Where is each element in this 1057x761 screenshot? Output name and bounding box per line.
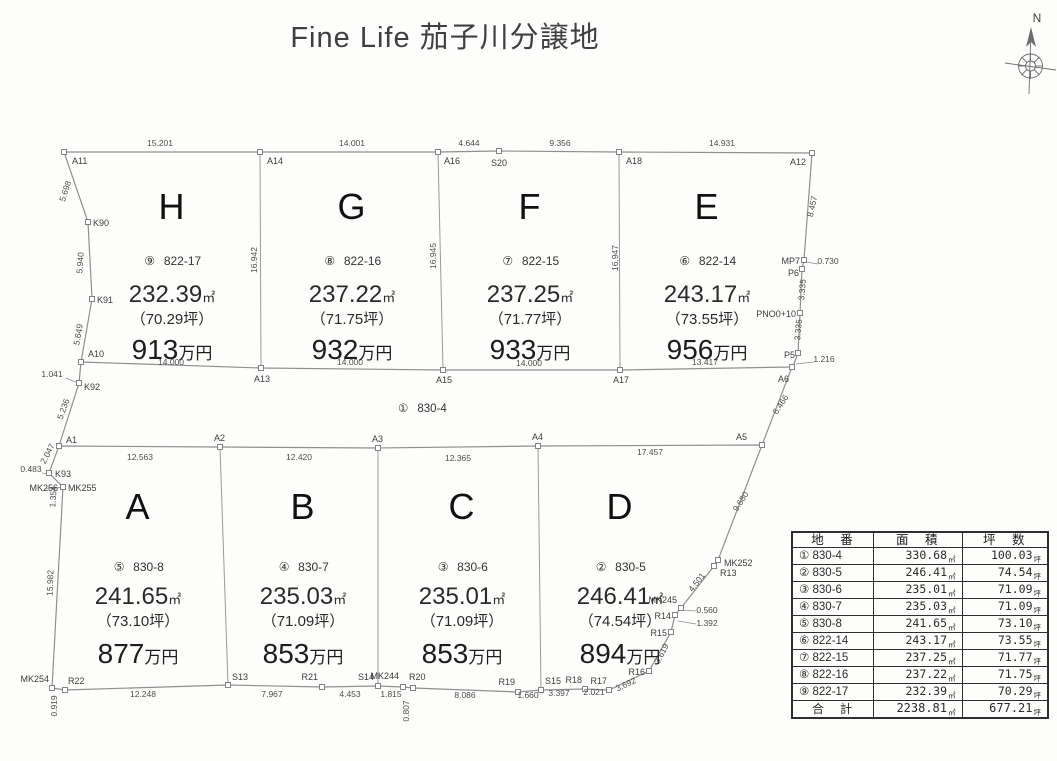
dimension-label: 3.692: [614, 675, 638, 693]
lot-tsubo: （71.77坪）: [450, 311, 610, 329]
survey-point-marker: [539, 688, 544, 693]
lot-area-unit: ㎡: [560, 290, 573, 305]
survey-point-label: A11: [72, 156, 87, 166]
lot-area: 246.41㎡: [540, 584, 700, 613]
dimension-label: 0.730: [817, 256, 839, 266]
survey-point-marker: [441, 368, 446, 373]
road-parcel-label: ①830-4: [398, 401, 447, 415]
lot-letter: B: [223, 486, 383, 528]
lot-summary-table: 地 番 面 積 坪 数 ① 830-4330.68㎡100.03坪② 830-5…: [791, 531, 1049, 719]
survey-point-marker: [810, 151, 815, 156]
lot-parcel: ⑧822-16: [272, 254, 432, 268]
lot-circle-number: ④: [277, 560, 291, 574]
survey-point-marker: [760, 443, 765, 448]
compass-spokes: [1018, 53, 1043, 79]
cell-total-area: 2238.81㎡: [873, 701, 962, 719]
lot-price-unit: 万円: [309, 648, 343, 667]
dimension-label: 12.248: [130, 689, 156, 699]
subdivision-plan-page: Fine Life 茄子川分譲地 N: [0, 0, 1057, 761]
survey-point-label: A5: [736, 432, 747, 442]
lot-price: 933万円: [450, 335, 610, 369]
lot-parcel: ⑨822-17: [92, 254, 252, 268]
lot-letter: D: [540, 486, 700, 528]
lot-area-unit: ㎡: [650, 592, 663, 607]
cell-tsubo: 70.29坪: [962, 684, 1048, 701]
lot-price: 956万円: [627, 335, 787, 369]
survey-point-label: A6: [778, 374, 789, 384]
lot-price-value: 853: [263, 638, 310, 669]
survey-point-marker: [802, 258, 807, 263]
dimension-label: 1.041: [41, 369, 63, 379]
survey-point-label: K93: [55, 469, 71, 479]
cell-area: 235.01㎡: [873, 582, 962, 599]
survey-point-label: A16: [444, 156, 460, 166]
dimension-label: 7.967: [261, 689, 283, 699]
survey-point-label: R21: [301, 672, 318, 682]
lot-price-unit: 万円: [144, 648, 178, 667]
table-row: ⑨ 822-17232.39㎡70.29坪: [792, 684, 1048, 701]
lot-price: 877万円: [58, 639, 218, 673]
lot-price: 853万円: [223, 639, 383, 673]
lot-price-value: 932: [312, 334, 359, 365]
survey-point-label: S15: [545, 676, 561, 686]
survey-point-marker: [47, 471, 52, 476]
lot-parcel: ③830-6: [382, 560, 542, 574]
lot-area-value: 235.01: [419, 583, 492, 610]
compass-north-label: N: [1033, 11, 1042, 25]
survey-point-marker: [436, 150, 441, 155]
survey-point-label: R20: [409, 672, 426, 682]
survey-point-label: R17: [590, 676, 607, 686]
cell-tsubo: 71.09坪: [962, 582, 1048, 599]
lot-tsubo: （73.55坪）: [627, 311, 787, 329]
lot-parcel-number: 830-7: [298, 560, 329, 574]
dimension-label: 2.021: [583, 687, 605, 697]
lot-area-value: 237.25: [487, 281, 560, 308]
dimension-label: 17.457: [637, 447, 663, 457]
lot-price-value: 933: [490, 334, 537, 365]
survey-point-marker: [62, 150, 67, 155]
survey-point-label: MK252: [724, 558, 753, 568]
dimension-label: 1.216: [813, 354, 835, 364]
dimension-label: 5.698: [57, 179, 73, 203]
survey-point-label: P6: [788, 268, 799, 278]
lot-price-unit: 万円: [358, 344, 392, 363]
dimension-label: 16.947: [610, 245, 620, 271]
dimension-label: 5.649: [71, 323, 85, 346]
survey-point-marker: [86, 220, 91, 225]
lot-circle-number: ②: [594, 560, 608, 574]
lot-price-unit: 万円: [626, 648, 660, 667]
lot-price-unit: 万円: [536, 344, 570, 363]
lot-area-unit: ㎡: [202, 290, 215, 305]
road-parcel-number: 830-4: [417, 403, 446, 415]
survey-point-marker: [79, 360, 84, 365]
road-circle-number: ①: [398, 403, 408, 415]
survey-point-marker: [712, 564, 717, 569]
survey-point-marker: [50, 686, 55, 691]
dimension-label: 5.236: [55, 397, 72, 421]
lot-letter: E: [627, 186, 787, 228]
lot-area-value: 237.22: [309, 281, 382, 308]
lot-price-unit: 万円: [713, 344, 747, 363]
table-row: ④ 830-7235.03㎡71.09坪: [792, 599, 1048, 616]
cell-parcel: ⑥ 822-14: [792, 633, 873, 650]
lot-H: H ⑨822-17 232.39㎡ （70.29坪） 913万円: [92, 186, 252, 369]
survey-point-marker: [790, 365, 795, 370]
survey-point-label: K92: [84, 382, 100, 392]
dimension-label: 3.335: [792, 318, 804, 340]
survey-point-label: S13: [232, 672, 248, 682]
dimension-label: 15.982: [45, 569, 56, 596]
survey-point-label: R13: [720, 568, 737, 578]
dimension-label: 9.356: [549, 138, 571, 148]
lot-tsubo: （71.09坪）: [382, 613, 542, 631]
table-row: ② 830-5246.41㎡74.54坪: [792, 565, 1048, 582]
dimension-label: 3.335: [796, 278, 808, 300]
lot-area: 235.03㎡: [223, 584, 383, 613]
lot-letter: H: [92, 186, 252, 228]
lot-price-unit: 万円: [468, 648, 502, 667]
lot-price-value: 853: [422, 638, 469, 669]
cell-tsubo: 71.75坪: [962, 667, 1048, 684]
dimension-label: 14.931: [709, 138, 735, 148]
table-body: ① 830-4330.68㎡100.03坪② 830-5246.41㎡74.54…: [792, 548, 1048, 719]
dimension-label: 0.807: [401, 700, 411, 722]
survey-point-label: A2: [214, 433, 225, 443]
survey-point-marker: [796, 351, 801, 356]
survey-point-label: A17: [613, 375, 629, 385]
dimension-label: 0.483: [20, 464, 42, 474]
survey-point-label: A15: [436, 375, 452, 385]
header-parcel: 地 番: [792, 532, 873, 548]
lot-parcel-number: 822-15: [522, 254, 559, 268]
lot-tsubo: （71.09坪）: [223, 613, 383, 631]
header-area: 面 積: [873, 532, 962, 548]
lot-circle-number: ⑥: [678, 254, 692, 268]
table-header: 地 番 面 積 坪 数: [792, 532, 1048, 548]
lot-price-value: 913: [132, 334, 179, 365]
lot-area: 237.22㎡: [272, 282, 432, 311]
dimension-label: 8.457: [805, 195, 819, 218]
table-row: ⑥ 822-14243.17㎡73.55坪: [792, 633, 1048, 650]
dimension-label: 3.397: [548, 688, 570, 698]
cell-tsubo: 71.77坪: [962, 650, 1048, 667]
lot-area-unit: ㎡: [333, 592, 346, 607]
table-row: ⑧ 822-16237.22㎡71.75坪: [792, 667, 1048, 684]
lot-parcel: ②830-5: [540, 560, 700, 574]
survey-point-marker: [798, 311, 803, 316]
lot-area-unit: ㎡: [168, 592, 181, 607]
lot-price-value: 894: [580, 638, 627, 669]
lot-area-value: 235.03: [260, 583, 333, 610]
lot-tsubo: （74.54坪）: [540, 613, 700, 631]
survey-point-marker: [607, 688, 612, 693]
lot-parcel-number: 822-17: [164, 254, 201, 268]
lot-parcel-number: 822-16: [344, 254, 381, 268]
lot-letter: G: [272, 186, 432, 228]
survey-point-label: S14: [358, 672, 374, 682]
survey-point-label: R22: [68, 676, 85, 686]
survey-point-marker: [63, 688, 68, 693]
survey-point-label: A4: [532, 432, 543, 442]
dimension-label: 1.815: [380, 689, 402, 699]
survey-point-label: A12: [790, 157, 806, 167]
survey-point-marker: [536, 444, 541, 449]
lot-area: 235.01㎡: [382, 584, 542, 613]
cell-tsubo: 100.03坪: [962, 548, 1048, 565]
table-row: ③ 830-6235.01㎡71.09坪: [792, 582, 1048, 599]
lot-letter: F: [450, 186, 610, 228]
lot-price-value: 956: [667, 334, 714, 365]
lot-price: 894万円: [540, 639, 700, 673]
cell-tsubo: 73.10坪: [962, 616, 1048, 633]
lot-area-value: 232.39: [129, 281, 202, 308]
cell-parcel: ① 830-4: [792, 548, 873, 565]
dimension-label: 6.466: [770, 392, 790, 415]
table-row: ⑤ 830-8241.65㎡73.10坪: [792, 616, 1048, 633]
survey-point-label: A3: [372, 434, 383, 444]
dimension-label: 12.420: [286, 452, 312, 462]
lot-price: 913万円: [92, 335, 252, 369]
cell-parcel: ⑤ 830-8: [792, 616, 873, 633]
cell-area: 237.22㎡: [873, 667, 962, 684]
lot-parcel-number: 830-8: [133, 560, 164, 574]
lot-area: 237.25㎡: [450, 282, 610, 311]
lot-tsubo: （73.10坪）: [58, 613, 218, 631]
compass-rose: [1005, 27, 1056, 94]
dimension-label: 4.453: [339, 689, 361, 699]
lot-parcel: ④830-7: [223, 560, 383, 574]
lot-price: 932万円: [272, 335, 432, 369]
survey-point-label: A13: [254, 374, 270, 384]
dimension-label: 14.001: [339, 138, 365, 148]
survey-point-marker: [376, 446, 381, 451]
lot-price-value: 877: [98, 638, 145, 669]
cell-area: 243.17㎡: [873, 633, 962, 650]
cell-parcel: ④ 830-7: [792, 599, 873, 616]
cell-parcel: ③ 830-6: [792, 582, 873, 599]
lot-G: G ⑧822-16 237.22㎡ （71.75坪） 932万円: [272, 186, 432, 369]
survey-point-marker: [258, 150, 263, 155]
lot-area-value: 243.17: [664, 281, 737, 308]
survey-point-marker: [618, 368, 623, 373]
lot-area-unit: ㎡: [382, 290, 395, 305]
lot-parcel: ⑤830-8: [58, 560, 218, 574]
cell-tsubo: 74.54坪: [962, 565, 1048, 582]
lot-price-unit: 万円: [178, 344, 212, 363]
survey-point-marker: [376, 684, 381, 689]
lot-area: 232.39㎡: [92, 282, 252, 311]
survey-point-marker: [716, 558, 721, 563]
table-row: ⑦ 822-15237.25㎡71.77坪: [792, 650, 1048, 667]
cell-parcel: ② 830-5: [792, 565, 873, 582]
cell-area: 330.68㎡: [873, 548, 962, 565]
lot-parcel-number: 830-5: [615, 560, 646, 574]
lot-circle-number: ③: [436, 560, 450, 574]
cell-area: 241.65㎡: [873, 616, 962, 633]
lot-circle-number: ⑤: [112, 560, 126, 574]
lot-area-value: 241.65: [95, 583, 168, 610]
dimension-label: 9.680: [730, 489, 750, 513]
cell-parcel: ⑦ 822-15: [792, 650, 873, 667]
lot-letter: C: [382, 486, 542, 528]
lot-area-unit: ㎡: [737, 290, 750, 305]
lot-circle-number: ⑨: [143, 254, 157, 268]
survey-point-label: R19: [498, 677, 515, 687]
lot-tsubo: （70.29坪）: [92, 311, 252, 329]
lot-parcel: ⑦822-15: [450, 254, 610, 268]
survey-point-marker: [320, 685, 325, 690]
lot-area: 243.17㎡: [627, 282, 787, 311]
lot-circle-number: ⑦: [501, 254, 515, 268]
lot-tsubo: （71.75坪）: [272, 311, 432, 329]
survey-point-label: A18: [626, 156, 642, 166]
survey-point-marker: [411, 686, 416, 691]
lot-C: C ③830-6 235.01㎡ （71.09坪） 853万円: [382, 486, 542, 673]
survey-point-label: S20: [491, 158, 507, 168]
lot-parcel-number: 830-6: [457, 560, 488, 574]
dimension-label: 2.047: [38, 442, 57, 466]
dimension-label: 15.201: [147, 138, 173, 148]
cell-area: 237.25㎡: [873, 650, 962, 667]
table-total-row: 合 計2238.81㎡677.21坪: [792, 701, 1048, 719]
cell-parcel: ⑧ 822-16: [792, 667, 873, 684]
lot-E: E ⑥822-14 243.17㎡ （73.55坪） 956万円: [627, 186, 787, 369]
lot-price: 853万円: [382, 639, 542, 673]
dimension-label: 12.563: [127, 452, 153, 462]
lot-parcel: ⑥822-14: [627, 254, 787, 268]
cell-total-tsubo: 677.21坪: [962, 701, 1048, 719]
survey-point-marker: [226, 683, 231, 688]
cell-parcel: ⑨ 822-17: [792, 684, 873, 701]
survey-point-marker: [800, 267, 805, 272]
dimension-label: 4.644: [458, 138, 480, 148]
dimension-label: 0.919: [49, 695, 59, 717]
header-tsubo: 坪 数: [962, 532, 1048, 548]
lot-letter: A: [58, 486, 218, 528]
lot-A: A ⑤830-8 241.65㎡ （73.10坪） 877万円: [58, 486, 218, 673]
dimension-label: 12.365: [445, 453, 471, 463]
lot-F: F ⑦822-15 237.25㎡ （71.77坪） 933万円: [450, 186, 610, 369]
survey-point-marker: [259, 366, 264, 371]
survey-point-label: A1: [66, 435, 77, 445]
lot-circle-number: ⑧: [323, 254, 337, 268]
cell-tsubo: 71.09坪: [962, 599, 1048, 616]
survey-point-marker: [617, 150, 622, 155]
survey-point-marker: [57, 444, 62, 449]
cell-area: 232.39㎡: [873, 684, 962, 701]
survey-point-marker: [497, 149, 502, 154]
cell-area: 246.41㎡: [873, 565, 962, 582]
cell-total-label: 合 計: [792, 701, 873, 719]
lot-D: D ②830-5 246.41㎡ （74.54坪） 894万円: [540, 486, 700, 673]
cell-tsubo: 73.55坪: [962, 633, 1048, 650]
lot-B: B ④830-7 235.03㎡ （71.09坪） 853万円: [223, 486, 383, 673]
lot-area-value: 246.41: [577, 583, 650, 610]
dimension-label: 5.940: [74, 252, 85, 274]
lot-parcel-number: 822-14: [699, 254, 736, 268]
lot-area: 241.65㎡: [58, 584, 218, 613]
cell-area: 235.03㎡: [873, 599, 962, 616]
survey-point-label: MK254: [20, 674, 49, 684]
table-header-row: 地 番 面 積 坪 数: [792, 532, 1048, 548]
survey-point-marker: [77, 381, 82, 386]
table-row: ① 830-4330.68㎡100.03坪: [792, 548, 1048, 565]
survey-point-marker: [218, 445, 223, 450]
survey-point-label: R18: [565, 675, 582, 685]
lot-area-unit: ㎡: [492, 592, 505, 607]
dimension-label: 1.660: [517, 690, 539, 700]
dimension-label: 8.086: [454, 690, 476, 700]
survey-point-label: A14: [267, 156, 283, 166]
